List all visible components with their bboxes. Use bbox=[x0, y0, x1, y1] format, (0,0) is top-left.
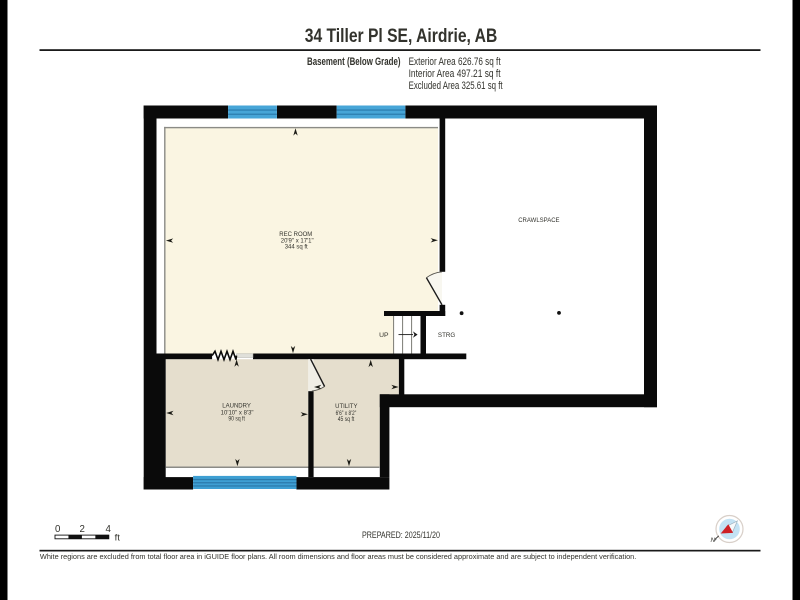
svg-text:ft: ft bbox=[115, 532, 121, 543]
svg-text:LAUNDRY: LAUNDRY bbox=[222, 403, 251, 409]
svg-text:CRAWLSPACE: CRAWLSPACE bbox=[518, 218, 559, 224]
svg-text:4: 4 bbox=[106, 524, 112, 535]
svg-text:10'10" x 8'3": 10'10" x 8'3" bbox=[221, 410, 254, 416]
svg-text:Exterior Area 626.76 sq ft: Exterior Area 626.76 sq ft bbox=[409, 56, 501, 68]
svg-text:Excluded Area 325.61 sq ft: Excluded Area 325.61 sq ft bbox=[409, 80, 503, 92]
svg-text:Basement (Below Grade): Basement (Below Grade) bbox=[307, 56, 401, 68]
svg-text:REC ROOM: REC ROOM bbox=[279, 232, 312, 238]
svg-text:2: 2 bbox=[80, 524, 85, 535]
svg-text:STRG: STRG bbox=[438, 333, 456, 339]
svg-text:UP: UP bbox=[379, 333, 388, 339]
svg-text:PREPARED: 2025/11/20: PREPARED: 2025/11/20 bbox=[362, 530, 440, 541]
svg-text:Interior Area 497.21 sq ft: Interior Area 497.21 sq ft bbox=[409, 68, 501, 80]
svg-text:UTILITY: UTILITY bbox=[335, 404, 357, 410]
svg-text:45 sq ft: 45 sq ft bbox=[338, 417, 355, 423]
svg-text:White regions are excluded fro: White regions are excluded from total fl… bbox=[40, 554, 636, 561]
svg-text:0: 0 bbox=[55, 524, 61, 535]
svg-text:90 sq ft: 90 sq ft bbox=[228, 417, 245, 423]
svg-text:34 Tiller Pl SE, Airdrie, AB: 34 Tiller Pl SE, Airdrie, AB bbox=[305, 26, 498, 47]
svg-text:6'6" x 8'2": 6'6" x 8'2" bbox=[336, 411, 357, 417]
svg-text:344 sq ft: 344 sq ft bbox=[285, 244, 308, 250]
